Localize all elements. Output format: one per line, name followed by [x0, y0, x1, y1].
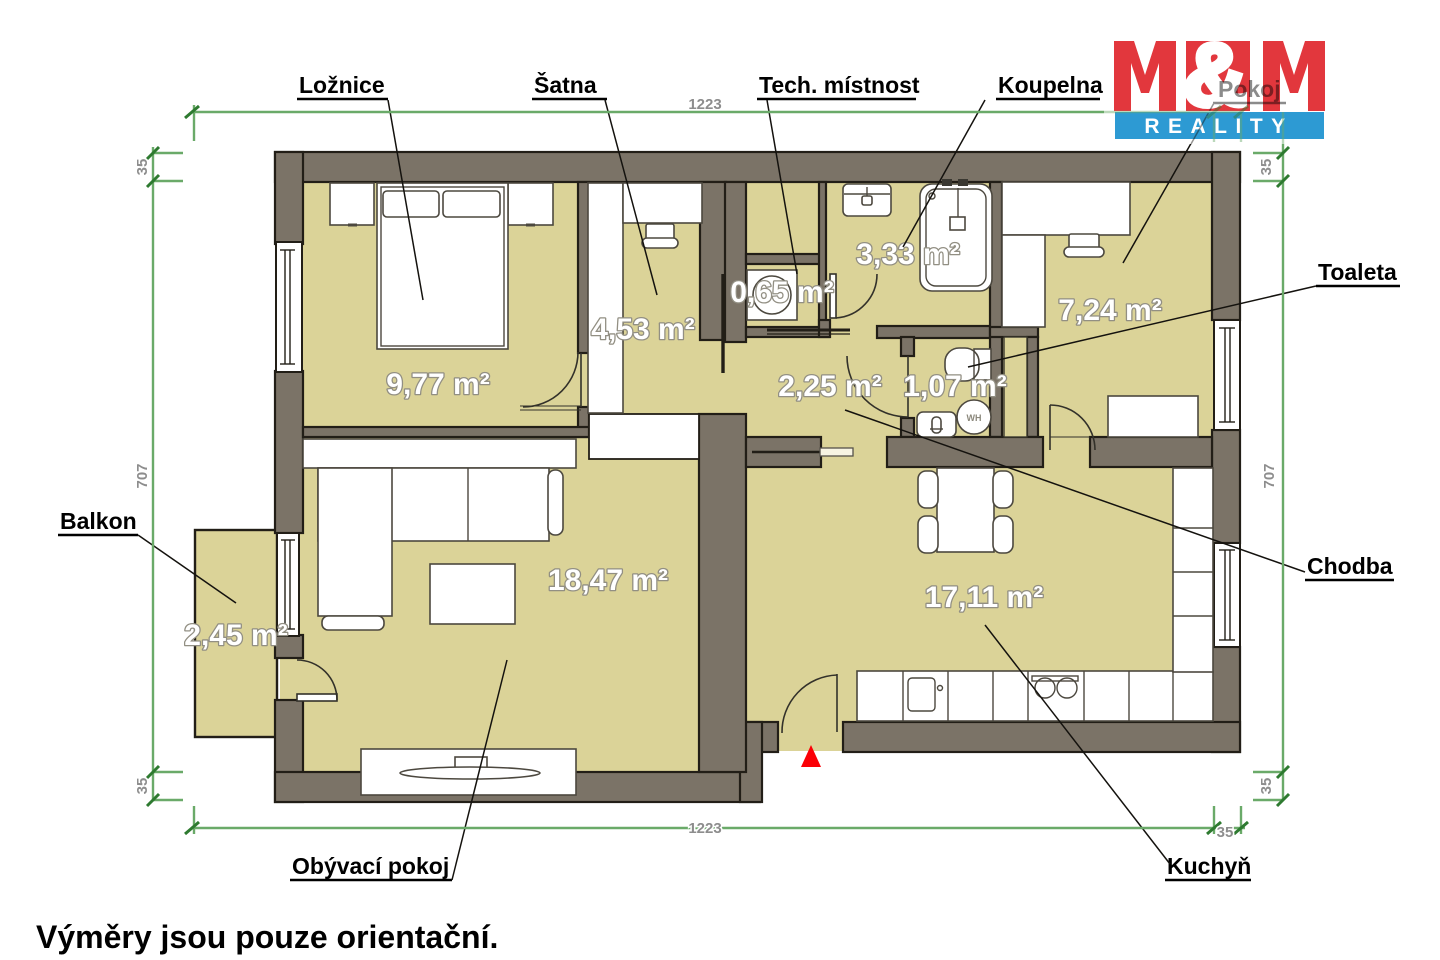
- svg-text:17,11 m²: 17,11 m²: [925, 581, 1043, 614]
- svg-text:&: &: [1183, 25, 1247, 124]
- svg-text:3,33 m²: 3,33 m²: [856, 238, 959, 271]
- svg-text:35: 35: [1258, 159, 1275, 176]
- svg-text:35: 35: [134, 778, 151, 795]
- svg-text:2,25 m²: 2,25 m²: [778, 370, 881, 403]
- svg-text:Tech. místnost: Tech. místnost: [759, 72, 920, 98]
- svg-text:707: 707: [1261, 463, 1278, 488]
- svg-text:9,77 m²: 9,77 m²: [386, 368, 489, 401]
- svg-text:Šatna: Šatna: [534, 71, 597, 98]
- svg-text:707: 707: [134, 463, 151, 488]
- svg-text:1,07 m²: 1,07 m²: [903, 370, 1006, 403]
- svg-text:Chodba: Chodba: [1307, 553, 1393, 579]
- svg-text:2,45 m²: 2,45 m²: [184, 619, 287, 652]
- svg-text:Výměry jsou pouze orientační.: Výměry jsou pouze orientační.: [36, 919, 498, 955]
- svg-text:Obývací pokoj: Obývací pokoj: [292, 853, 449, 879]
- svg-text:Ložnice: Ložnice: [299, 72, 385, 98]
- svg-text:35: 35: [1258, 778, 1275, 795]
- svg-text:1223: 1223: [688, 820, 721, 837]
- svg-text:REALITY: REALITY: [1144, 115, 1293, 138]
- svg-text:1223: 1223: [688, 96, 721, 113]
- svg-text:35: 35: [1217, 824, 1234, 841]
- svg-text:35: 35: [134, 159, 151, 176]
- svg-text:Balkon: Balkon: [60, 508, 137, 534]
- svg-text:Pokoj: Pokoj: [1218, 76, 1281, 102]
- svg-text:18,47 m²: 18,47 m²: [548, 564, 668, 597]
- svg-text:7,24 m²: 7,24 m²: [1058, 294, 1161, 327]
- svg-text:Kuchyň: Kuchyň: [1167, 853, 1251, 879]
- svg-text:Toaleta: Toaleta: [1318, 259, 1397, 285]
- svg-text:4,53 m²: 4,53 m²: [591, 313, 694, 346]
- svg-text:Koupelna: Koupelna: [998, 72, 1103, 98]
- svg-text:WH: WH: [967, 413, 982, 423]
- svg-text:0,65 m²: 0,65 m²: [730, 276, 833, 309]
